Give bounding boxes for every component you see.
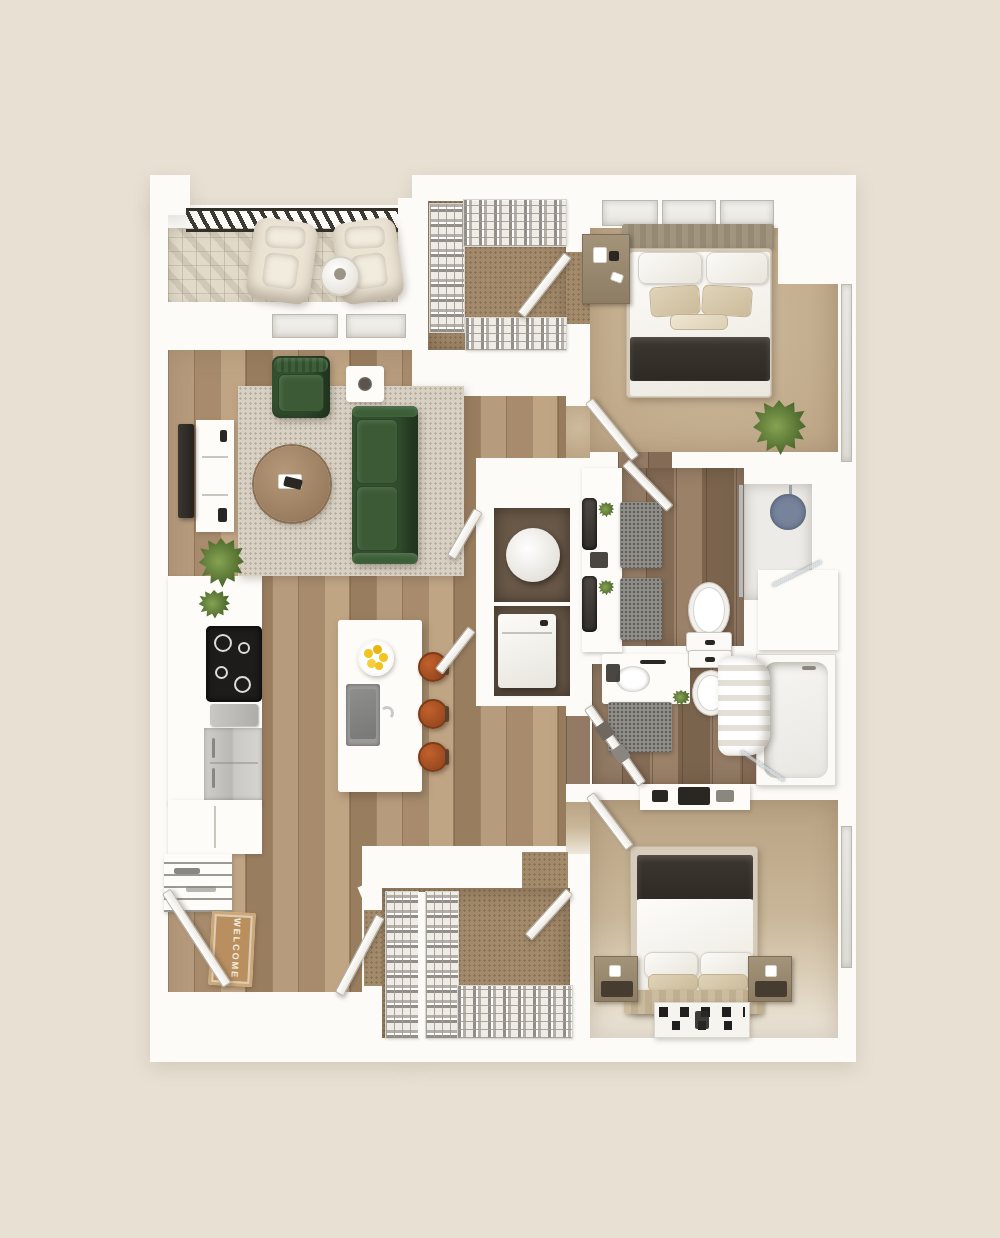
stool-back <box>445 749 449 765</box>
sofa-cushion <box>356 486 398 551</box>
pantry-items <box>186 886 216 892</box>
bath1-mat <box>620 578 662 640</box>
bath2-faucet <box>640 660 666 664</box>
burner <box>215 666 228 679</box>
clothes-rack <box>426 892 458 1038</box>
patio-cushion <box>261 252 299 290</box>
patio-cushion <box>344 226 385 249</box>
lemon <box>364 649 373 658</box>
bedroom1-window-pane <box>720 200 774 226</box>
bedroom2-side-window <box>841 826 852 968</box>
bed1-pillow <box>638 252 702 284</box>
bar-stool <box>418 742 448 772</box>
bed1-blanket <box>630 337 770 381</box>
flush-button <box>705 657 715 662</box>
armchair <box>272 356 330 418</box>
washer-dryer <box>498 614 556 688</box>
nightstand-decor <box>610 271 624 284</box>
lemon-bowl <box>358 640 394 676</box>
doorway-bath2 <box>566 716 590 784</box>
coffee-table <box>254 446 330 522</box>
bath1-tray <box>590 552 608 568</box>
bath2-sink <box>616 666 650 692</box>
closet-partition <box>418 892 426 1038</box>
bedroom2-dresser <box>640 784 750 810</box>
nightstand-front <box>601 981 633 997</box>
refrigerator <box>204 728 262 800</box>
sofa <box>352 406 418 564</box>
sink-basin <box>350 689 376 739</box>
water-heater <box>506 528 560 582</box>
burner <box>238 642 250 654</box>
clothes-rack <box>466 318 566 350</box>
bath2-bottles <box>606 664 620 682</box>
sofa-armrest <box>352 406 418 417</box>
bedroom2-rug <box>654 1002 750 1038</box>
table-decor <box>334 268 346 280</box>
bed2-blanket <box>637 855 753 901</box>
patio-chair <box>245 216 320 306</box>
side-table <box>346 366 384 402</box>
bath1-bench <box>758 570 838 650</box>
bedroom1-side-window <box>841 284 852 462</box>
patio-cushion <box>265 226 306 249</box>
tub-faucet <box>802 666 816 670</box>
floor-plan-render: WELCOME <box>0 0 1000 1238</box>
armchair-seat <box>278 374 324 412</box>
bath1-toilet-bowl <box>688 582 730 638</box>
clothes-rack <box>430 204 464 332</box>
bath1-sink <box>582 576 597 632</box>
lemon <box>375 662 383 670</box>
island-sink <box>346 684 380 746</box>
stool-back <box>445 706 449 722</box>
bedroom1-window-pane <box>602 200 658 226</box>
console-decor <box>218 508 227 522</box>
console-seam <box>202 456 228 458</box>
tv-console <box>196 420 234 532</box>
dresser-decor <box>652 790 668 802</box>
burner <box>234 676 251 693</box>
nightstand-decor <box>593 247 607 263</box>
bath1-mat <box>620 502 662 568</box>
bath1-sink <box>582 498 597 550</box>
nightstand-decor <box>609 965 621 977</box>
living-window-pane <box>346 314 406 338</box>
cooktop <box>206 626 262 702</box>
sofa-cushion <box>356 419 398 484</box>
shower-glass-panel <box>739 485 743 597</box>
nightstand-front <box>755 981 787 997</box>
fridge-handle <box>212 738 215 758</box>
patio-table <box>322 258 358 294</box>
kitchen-cabinet <box>168 800 262 854</box>
wall-bottom <box>150 1040 856 1062</box>
nightstand-decor <box>609 251 619 261</box>
flush-button <box>705 640 715 645</box>
doorway-bedroom2 <box>566 802 590 854</box>
dresser-decor <box>678 787 710 805</box>
decor-bowl <box>358 377 372 391</box>
bar-stool <box>418 699 448 729</box>
doorway-closet-bottom-top <box>522 852 568 890</box>
dresser-decor <box>716 790 734 802</box>
island-faucet <box>380 706 394 720</box>
sofa-armrest <box>352 553 418 564</box>
coffee-maker <box>210 704 258 726</box>
armchair-back <box>274 358 328 372</box>
pantry-items <box>174 868 200 874</box>
shower-curtain <box>718 656 770 756</box>
washer-control <box>540 620 548 626</box>
burner <box>214 634 232 652</box>
lemon <box>379 653 388 662</box>
wall-left <box>150 175 168 1062</box>
rug-pattern <box>695 1011 709 1029</box>
cabinet-seam <box>214 806 216 848</box>
clothes-rack <box>464 200 566 246</box>
fridge-seam <box>210 762 258 764</box>
bed1-accent-pillow <box>701 284 753 317</box>
bath1-toilet-tank <box>686 632 732 652</box>
wall-entry-mass <box>168 992 364 1040</box>
console-seam <box>202 494 228 496</box>
bed1-lumbar-pillow <box>670 314 728 330</box>
console-decor <box>220 430 227 442</box>
bathtub-interior <box>764 662 828 778</box>
fridge-handle <box>212 768 215 788</box>
living-window-pane <box>272 314 338 338</box>
doorway-bedroom1 <box>566 406 590 458</box>
shower-mat <box>770 494 806 530</box>
bed2-nightstand <box>594 956 638 1002</box>
bed1-headboard <box>622 224 774 250</box>
washer-seam <box>502 632 552 634</box>
bed1-pillow <box>706 252 768 284</box>
bed1-nightstand <box>582 234 630 304</box>
clothes-rack <box>386 892 418 1038</box>
clothes-rack <box>458 986 572 1038</box>
bed1-accent-pillow <box>649 284 701 317</box>
bed2-nightstand <box>748 956 792 1002</box>
bedroom1-window-pane <box>662 200 716 226</box>
nightstand-decor <box>765 965 777 977</box>
tv <box>178 424 194 518</box>
